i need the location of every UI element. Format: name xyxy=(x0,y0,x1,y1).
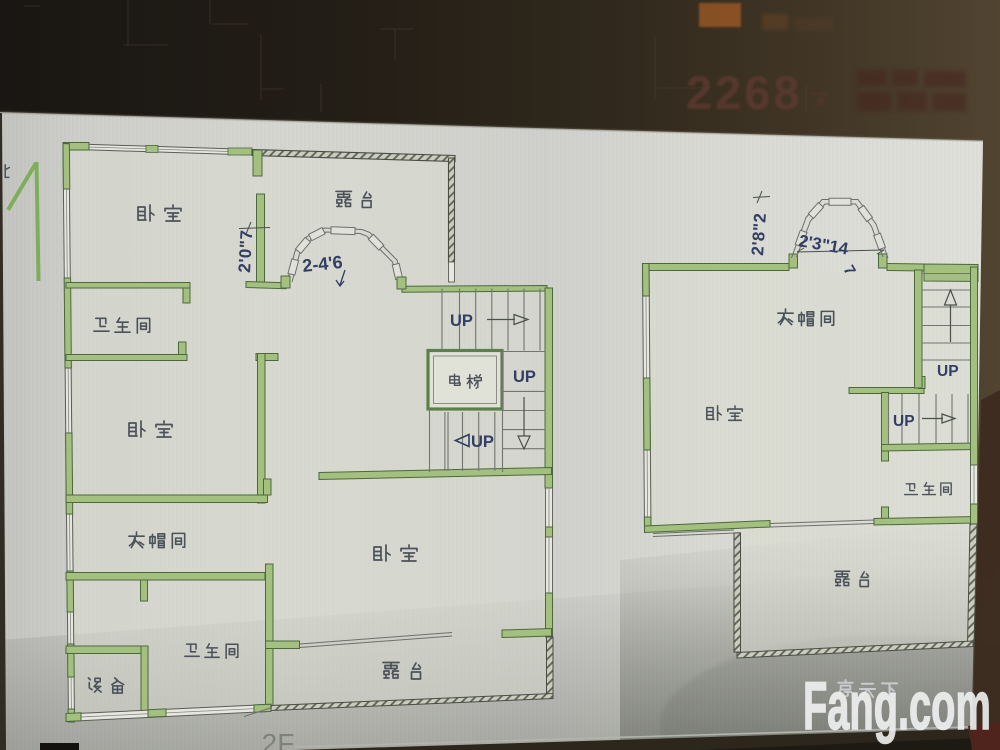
svg-text:UP: UP xyxy=(450,312,473,330)
svg-text:2F: 2F xyxy=(262,728,295,750)
svg-text:2'8"2: 2'8"2 xyxy=(748,212,770,256)
svg-text:Fang.com: Fang.com xyxy=(803,668,991,744)
svg-text:2-4'6: 2-4'6 xyxy=(301,252,343,276)
svg-text:UP: UP xyxy=(937,363,959,380)
svg-text:2268: 2268 xyxy=(686,66,803,119)
svg-text:2'0"7: 2'0"7 xyxy=(235,229,256,273)
svg-text:UP: UP xyxy=(893,413,915,430)
svg-text:UP: UP xyxy=(471,433,494,451)
svg-text:UP: UP xyxy=(513,368,536,386)
